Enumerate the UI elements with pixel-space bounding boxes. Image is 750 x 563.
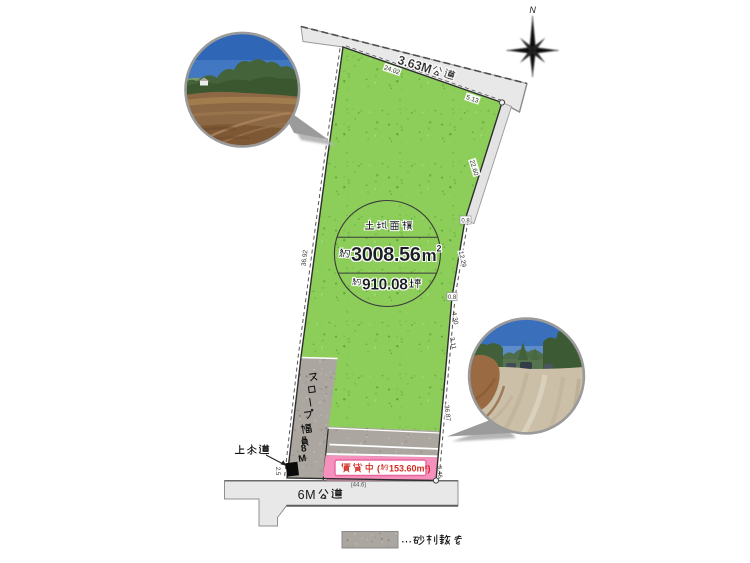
svg-text:910.08: 910.08 xyxy=(362,277,408,294)
svg-text:(44.6): (44.6) xyxy=(351,483,367,489)
svg-text:⋯: ⋯ xyxy=(401,536,412,548)
svg-text:153.60m²): 153.60m²) xyxy=(389,464,431,474)
svg-text:0.8: 0.8 xyxy=(461,219,470,225)
svg-text:0.8: 0.8 xyxy=(448,295,457,301)
svg-text:5.46: 5.46 xyxy=(436,466,443,479)
svg-text:3008.56: 3008.56 xyxy=(351,244,421,266)
svg-text:M: M xyxy=(298,453,307,465)
svg-text:6M: 6M xyxy=(298,488,316,502)
svg-text:2.5: 2.5 xyxy=(274,467,280,476)
svg-text:2: 2 xyxy=(437,244,442,254)
svg-text:(: ( xyxy=(377,464,380,474)
svg-text:N: N xyxy=(529,5,536,15)
svg-text:m: m xyxy=(422,246,437,265)
